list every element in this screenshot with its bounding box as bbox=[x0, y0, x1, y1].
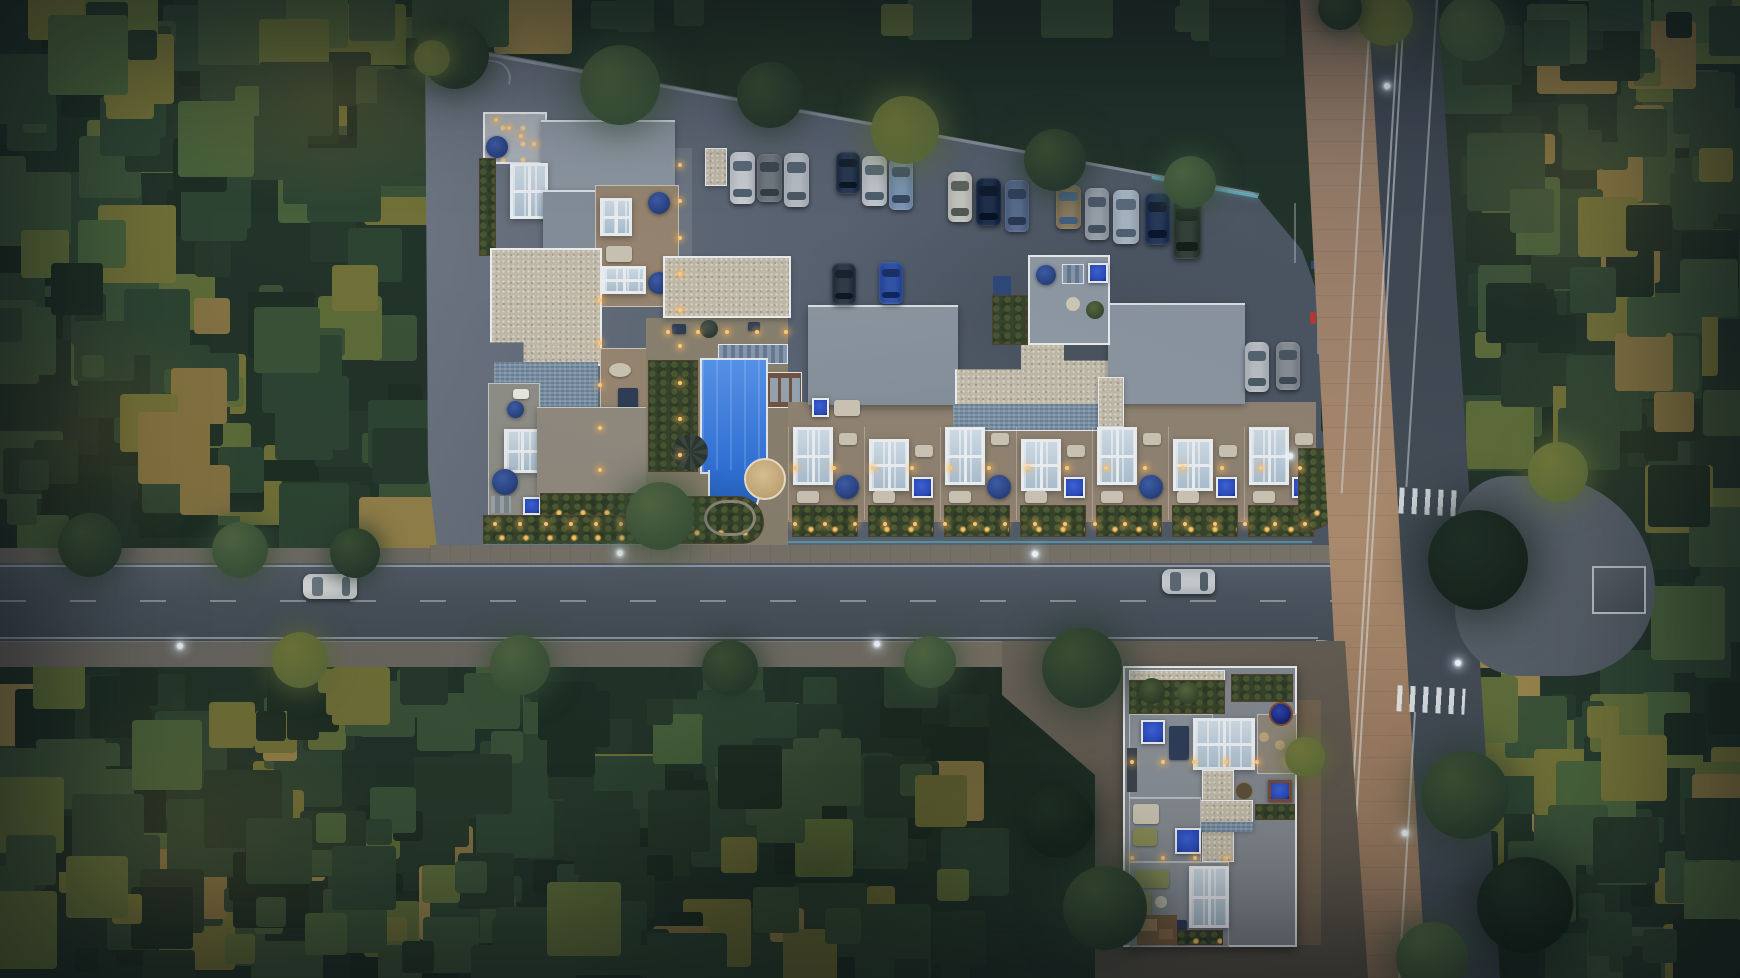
plunge-pool bbox=[523, 497, 541, 515]
path-light bbox=[598, 298, 602, 302]
path-light bbox=[1224, 856, 1228, 860]
tree bbox=[1477, 857, 1573, 953]
car-windshield bbox=[1088, 197, 1106, 207]
skylight bbox=[602, 266, 646, 294]
path-light bbox=[871, 466, 875, 470]
building-west-planter bbox=[479, 158, 496, 256]
coffee-table bbox=[1155, 896, 1167, 908]
tree bbox=[490, 635, 550, 695]
car bbox=[1085, 188, 1109, 240]
building-west-gravel-roof bbox=[490, 248, 602, 366]
path-light bbox=[678, 453, 682, 457]
car-rear-window bbox=[1008, 217, 1026, 225]
dining-table bbox=[1169, 726, 1189, 760]
skylight bbox=[1173, 439, 1213, 491]
car bbox=[976, 178, 1001, 226]
path-light bbox=[1104, 466, 1108, 470]
car-windshield bbox=[1279, 350, 1297, 360]
path-light bbox=[678, 236, 682, 240]
spa-round bbox=[507, 401, 524, 418]
forest-layer bbox=[0, 0, 2, 2]
car-windshield bbox=[882, 269, 900, 277]
path-light bbox=[1183, 522, 1187, 526]
patio-furniture bbox=[991, 433, 1009, 445]
car-windshield bbox=[979, 186, 998, 196]
tree bbox=[702, 640, 758, 696]
umbrella bbox=[835, 475, 859, 499]
path-light bbox=[1243, 522, 1247, 526]
building-west-terrace-south bbox=[488, 383, 540, 521]
car-windshield bbox=[1148, 202, 1167, 212]
path-light bbox=[725, 330, 729, 334]
tree bbox=[1528, 442, 1588, 502]
path-light bbox=[1093, 522, 1097, 526]
hot-tub bbox=[1064, 477, 1085, 498]
tree bbox=[626, 482, 694, 550]
villa-mid-planter bbox=[1255, 804, 1295, 820]
villa-skylight-2 bbox=[1189, 866, 1229, 928]
garden-stone-arc bbox=[704, 500, 756, 536]
skylight bbox=[945, 427, 985, 485]
planter-tree bbox=[1177, 682, 1199, 704]
street-light bbox=[1384, 83, 1390, 89]
umbrella-large bbox=[492, 469, 518, 495]
unit-hedge bbox=[1020, 505, 1086, 537]
path-light bbox=[544, 522, 548, 526]
car bbox=[879, 262, 903, 304]
car bbox=[757, 154, 782, 202]
car-rear-window bbox=[1200, 572, 1208, 591]
car bbox=[784, 153, 809, 207]
path-light bbox=[793, 522, 797, 526]
patio-furniture bbox=[1143, 433, 1161, 445]
tree bbox=[414, 40, 450, 76]
path-light bbox=[784, 330, 788, 334]
path-light bbox=[1123, 522, 1127, 526]
tree bbox=[580, 45, 660, 125]
path-light bbox=[973, 522, 977, 526]
deck-slats bbox=[491, 496, 511, 513]
path-light bbox=[598, 383, 602, 387]
car-rear-window bbox=[1059, 217, 1078, 224]
road-horizontal bbox=[0, 563, 1462, 641]
car bbox=[303, 574, 357, 599]
car-rear-window bbox=[839, 182, 857, 188]
bench bbox=[1127, 748, 1137, 792]
patio-set bbox=[609, 363, 631, 377]
car-rear-window bbox=[787, 192, 806, 200]
tree bbox=[1421, 751, 1509, 839]
car-rear-window bbox=[1116, 229, 1136, 237]
road-center-dashes bbox=[0, 600, 1420, 602]
path-light bbox=[666, 330, 670, 334]
hot-tub bbox=[1141, 720, 1165, 744]
crosswalk-north bbox=[1398, 487, 1459, 516]
car-rear-window bbox=[892, 195, 910, 203]
path-light bbox=[1298, 466, 1302, 470]
patio-furniture bbox=[1177, 491, 1199, 503]
car bbox=[948, 172, 972, 222]
patio-furniture bbox=[949, 491, 971, 503]
path-light bbox=[678, 417, 682, 421]
car-rear-window bbox=[865, 192, 884, 200]
patio-furniture bbox=[1219, 445, 1237, 457]
path-light bbox=[793, 466, 797, 470]
path-light bbox=[598, 341, 602, 345]
car bbox=[862, 156, 887, 206]
tree bbox=[1428, 510, 1528, 610]
car-windshield bbox=[1008, 189, 1026, 199]
deck-table bbox=[672, 324, 686, 334]
path-light bbox=[1303, 522, 1307, 526]
skylight bbox=[504, 429, 540, 473]
hot-tub bbox=[912, 477, 933, 498]
car-windshield bbox=[865, 165, 884, 175]
car bbox=[1113, 190, 1139, 244]
car bbox=[832, 263, 856, 305]
car-windshield bbox=[839, 159, 857, 167]
car-windshield bbox=[787, 162, 806, 173]
skylight bbox=[600, 198, 632, 236]
umbrella bbox=[1139, 475, 1163, 499]
skylight bbox=[869, 439, 909, 491]
led-curb-b bbox=[788, 541, 1312, 543]
car-rear-window bbox=[1088, 225, 1106, 233]
path-light bbox=[1143, 466, 1147, 470]
car-rear-window bbox=[951, 208, 969, 216]
street-light bbox=[617, 550, 623, 556]
patio-furniture bbox=[915, 445, 933, 457]
path-light bbox=[943, 522, 947, 526]
tree bbox=[330, 528, 380, 578]
path-light bbox=[1065, 466, 1069, 470]
unit-hedge bbox=[944, 505, 1010, 537]
car-windshield bbox=[1248, 351, 1266, 361]
path-light bbox=[1193, 856, 1197, 860]
car-windshield bbox=[835, 270, 853, 278]
path-light bbox=[1003, 522, 1007, 526]
unit-hedge bbox=[792, 505, 858, 537]
car-windshield bbox=[1059, 192, 1078, 201]
car-windshield bbox=[1170, 572, 1181, 591]
tree bbox=[904, 636, 956, 688]
path-light bbox=[569, 522, 573, 526]
path-light bbox=[1273, 522, 1277, 526]
street-light bbox=[1402, 830, 1408, 836]
path-light bbox=[507, 126, 511, 130]
patio-furniture bbox=[873, 491, 895, 503]
umbrella bbox=[987, 475, 1011, 499]
villa-bottom-planter bbox=[1177, 930, 1223, 945]
tree bbox=[1024, 129, 1086, 191]
umbrella bbox=[648, 192, 670, 214]
car-rear-window bbox=[882, 292, 900, 298]
car-windshield bbox=[951, 181, 969, 191]
patio-furniture bbox=[1067, 445, 1085, 457]
car-windshield bbox=[1176, 209, 1198, 221]
path-light bbox=[678, 308, 682, 312]
street-light bbox=[1455, 660, 1461, 666]
path-light bbox=[598, 468, 602, 472]
patio-furniture bbox=[839, 433, 857, 445]
path-light bbox=[1213, 522, 1217, 526]
octagon-table bbox=[1235, 782, 1253, 800]
unit-hedge bbox=[1096, 505, 1162, 537]
wicker-chair bbox=[1259, 732, 1269, 742]
lounge-set bbox=[606, 246, 632, 262]
path-light bbox=[678, 381, 682, 385]
hot-tub bbox=[1216, 477, 1237, 498]
car bbox=[1056, 185, 1081, 229]
umbrella-roofdeck bbox=[486, 136, 508, 158]
unit-hedge bbox=[1172, 505, 1238, 537]
street-light bbox=[177, 643, 183, 649]
tree bbox=[272, 632, 328, 688]
tree bbox=[871, 96, 939, 164]
villa-topright-planter bbox=[1231, 674, 1293, 702]
car bbox=[1173, 199, 1201, 259]
car bbox=[1145, 193, 1170, 245]
sidewalk-site-front bbox=[430, 545, 1358, 565]
car-windshield bbox=[892, 167, 910, 177]
deck-umbrella-dark bbox=[700, 320, 718, 338]
path-light bbox=[1153, 522, 1157, 526]
road-edge-top bbox=[0, 565, 1404, 567]
tree bbox=[1042, 628, 1122, 708]
car-rear-window bbox=[979, 213, 998, 220]
skylight bbox=[1097, 427, 1137, 485]
path-light bbox=[493, 522, 497, 526]
tree bbox=[1063, 866, 1147, 950]
car-windshield bbox=[312, 577, 323, 596]
patio-furniture bbox=[1295, 433, 1313, 445]
path-light bbox=[853, 522, 857, 526]
path-light bbox=[1255, 760, 1259, 764]
patio-furniture bbox=[1101, 491, 1123, 503]
skylight bbox=[1021, 439, 1061, 491]
planter-tree bbox=[1139, 678, 1165, 704]
street-light bbox=[1032, 551, 1038, 557]
car-rear-window bbox=[835, 293, 853, 299]
car-rear-window bbox=[1248, 378, 1266, 386]
wicker-chair bbox=[1275, 740, 1285, 750]
patio-furniture bbox=[1025, 491, 1047, 503]
car-windshield bbox=[1116, 199, 1136, 210]
crosswalk-south bbox=[1396, 685, 1465, 715]
car bbox=[1276, 342, 1300, 390]
path-light bbox=[883, 522, 887, 526]
tree bbox=[1439, 0, 1505, 61]
skylight bbox=[1249, 427, 1289, 485]
path-light bbox=[1224, 760, 1228, 764]
tree bbox=[1285, 737, 1325, 777]
tree bbox=[1164, 156, 1216, 208]
car bbox=[1245, 342, 1269, 392]
road-edge-bottom bbox=[0, 637, 1318, 639]
path-light bbox=[913, 522, 917, 526]
building-west-main-roof bbox=[541, 120, 675, 190]
pool-gazebo bbox=[672, 434, 708, 470]
car bbox=[1005, 180, 1029, 232]
path-light bbox=[696, 330, 700, 334]
path-light bbox=[598, 426, 602, 430]
path-light bbox=[494, 118, 498, 122]
east-apron-shed bbox=[1592, 566, 1646, 614]
car bbox=[836, 152, 860, 194]
patio-furniture bbox=[1253, 491, 1275, 503]
car bbox=[1162, 569, 1215, 594]
car-rear-window bbox=[1148, 230, 1167, 238]
sofa bbox=[1133, 804, 1159, 824]
tree bbox=[58, 513, 122, 577]
tree bbox=[212, 522, 268, 578]
unit-hedge bbox=[868, 505, 934, 537]
path-light bbox=[678, 163, 682, 167]
tree bbox=[1022, 786, 1094, 858]
path-light bbox=[1130, 760, 1134, 764]
car-windshield bbox=[733, 161, 752, 171]
hot-tub bbox=[1268, 780, 1292, 802]
path-light bbox=[678, 272, 682, 276]
path-light bbox=[823, 522, 827, 526]
path-light bbox=[910, 466, 914, 470]
path-light bbox=[832, 466, 836, 470]
sofa bbox=[1133, 828, 1157, 846]
aerial-scene bbox=[0, 0, 1740, 978]
street-light bbox=[874, 641, 880, 647]
lot-gravel-strip bbox=[705, 148, 727, 186]
skylight bbox=[793, 427, 833, 485]
swimming-pool bbox=[700, 358, 768, 474]
car bbox=[889, 158, 913, 210]
building-west bbox=[428, 100, 680, 548]
path-light bbox=[1063, 522, 1067, 526]
car-rear-window bbox=[733, 189, 752, 197]
car bbox=[730, 152, 755, 204]
path-light bbox=[1130, 856, 1134, 860]
path-light bbox=[1033, 522, 1037, 526]
spa-round-dark bbox=[1269, 702, 1293, 726]
table-white bbox=[513, 389, 529, 399]
villa-building bbox=[1123, 666, 1297, 947]
patio-furniture bbox=[797, 491, 819, 503]
car-rear-window bbox=[1279, 377, 1297, 384]
hot-tub bbox=[1175, 828, 1201, 854]
car-rear-window bbox=[342, 577, 350, 596]
car-rear-window bbox=[1176, 242, 1198, 251]
path-light bbox=[755, 330, 759, 334]
street-light bbox=[1287, 453, 1293, 459]
car-windshield bbox=[760, 162, 779, 172]
tree bbox=[737, 62, 803, 128]
path-light bbox=[532, 142, 536, 146]
car-rear-window bbox=[760, 189, 779, 196]
